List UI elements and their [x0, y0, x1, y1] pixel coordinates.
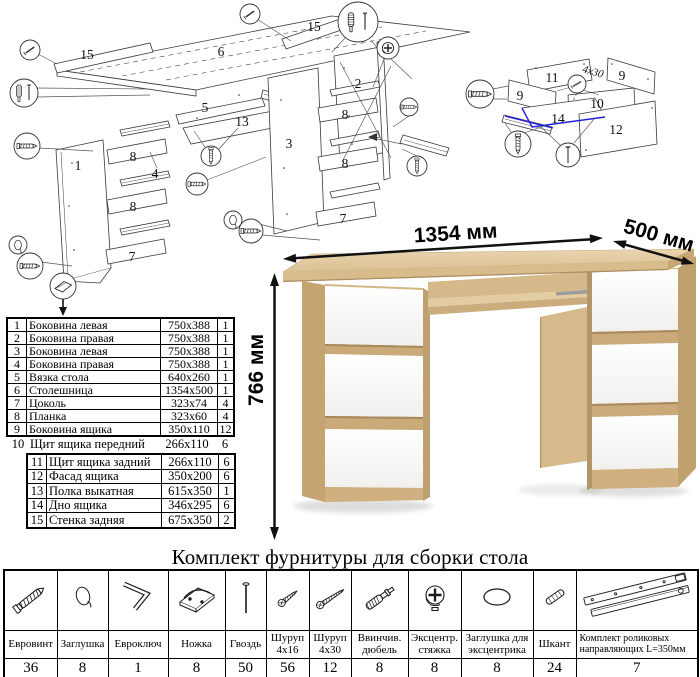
hardware-icon-cell: [309, 570, 351, 631]
hardware-icon-cell: [533, 570, 576, 631]
hardware-qty: 8: [461, 659, 533, 677]
part-name: Щит ящика передний: [30, 437, 162, 452]
part-label: 9: [517, 88, 524, 103]
part-label: 6: [218, 44, 225, 59]
hardware-name: Заглушка для эксцентрика: [461, 631, 533, 659]
part-label: 8: [342, 107, 349, 122]
hardware-kit-title: Комплект фурнитуры для сборки стола: [0, 545, 700, 570]
part-num: 8: [7, 410, 27, 423]
part-num: 10: [6, 437, 30, 452]
part-size: 350x110: [161, 423, 218, 437]
part-label: 8: [342, 156, 349, 171]
parts-row: 5Вязка стола640x2601: [7, 371, 234, 384]
part-num: 6: [7, 384, 27, 397]
part-num: 11: [27, 454, 47, 469]
nail-icon: [226, 571, 266, 625]
left-drawer-1: [325, 286, 423, 346]
confirmat-screw-icon: [7, 571, 55, 625]
part-qty: 1: [218, 345, 235, 358]
parts-list: 1Боковина левая750x3881 2Боковина правая…: [6, 317, 238, 529]
part-qty: 1: [218, 358, 235, 371]
part-qty: 4: [218, 397, 235, 410]
part-size: 640x260: [161, 371, 218, 384]
parts-row: 7Цоколь323x744: [7, 397, 234, 410]
right-drawer-1: [592, 269, 678, 332]
part-qty: 1: [218, 318, 235, 332]
middle-parts-drawing: [176, 68, 324, 234]
hardware-icon-cell: [461, 570, 533, 631]
part-num: 7: [7, 397, 27, 410]
part-num: 13: [27, 484, 47, 499]
tray-left-wall: [423, 288, 430, 501]
part-qty: 6: [219, 454, 236, 469]
hardware-icon-cell: [351, 570, 408, 631]
arrowhead: [283, 254, 296, 263]
hardware-icon-cell: [408, 570, 461, 631]
hardware-icon-cell: [108, 570, 168, 631]
hardware-icon-cell: [57, 570, 108, 631]
part-qty: 6: [219, 469, 236, 484]
hardware-qty: 12: [309, 659, 351, 677]
confirmat-icon: [469, 91, 492, 97]
part-size: 266x110: [162, 437, 212, 452]
hardware-name: Евровинт: [4, 631, 57, 659]
wood-dowel-icon: [534, 571, 576, 625]
right-drawer-2: [592, 343, 678, 404]
hardware-qty: 7: [576, 659, 698, 677]
part-label: 11: [546, 70, 559, 85]
confirmat-icon: [241, 228, 261, 233]
part-num: 3: [7, 345, 27, 358]
part-name: Планка: [27, 410, 161, 423]
part-name: Боковина ящика: [27, 423, 161, 437]
parts-row: 15Стенка задняя675x3502: [27, 513, 235, 528]
width-dimension-label: 1354 мм: [413, 219, 498, 247]
cam-cover-icon: [464, 571, 530, 625]
hardware-qty: 8: [57, 659, 108, 677]
arrowhead: [270, 273, 279, 286]
part-label: 8: [130, 149, 137, 164]
arrowhead: [613, 240, 627, 248]
part-label: 8: [130, 199, 137, 214]
parts-row: 11Щит ящика задний266x1106: [27, 454, 235, 469]
confirmat-icon: [515, 134, 520, 154]
part-num: 9: [7, 423, 27, 437]
right-plinth: [592, 468, 678, 489]
part-qty: 2: [219, 513, 236, 528]
hardware-icon-cell: [4, 570, 57, 631]
part-name: Вязка стола: [27, 371, 161, 384]
part-size: 323x60: [161, 410, 218, 423]
assembly-instruction-sheet: 15 6 15 1 8 4 8 7 5 13 3 2 8 8 7: [0, 0, 700, 677]
part-label: 13: [235, 114, 249, 129]
hardware-name: Шуруп 4x16: [266, 631, 309, 659]
part-qty: 6: [212, 437, 238, 452]
part-name: Боковина правая: [27, 332, 161, 345]
hardware-qty: 8: [351, 659, 408, 677]
part-size: 750x388: [161, 318, 218, 332]
part-label: 12: [609, 122, 623, 137]
part-size: 750x388: [161, 358, 218, 371]
confirmat-icon: [401, 105, 417, 109]
screw-in-dowel-icon: [354, 571, 406, 625]
part-qty: 1: [218, 384, 235, 397]
parts-row-10: 10 Щит ящика передний 266x110 6: [6, 437, 238, 452]
part-name: Дно ящика: [47, 498, 162, 513]
part-label: 9: [619, 68, 626, 83]
arrowhead: [590, 234, 603, 243]
part-num: 15: [27, 513, 47, 528]
part-qty: 1: [219, 484, 236, 499]
hardware-icon-cell: [168, 570, 225, 631]
hardware-qty: 24: [533, 659, 576, 677]
confirmat-icon: [17, 143, 37, 148]
screw-4x16-icon: [267, 571, 309, 625]
parts-row: 13Полка выкатная615x3501: [27, 484, 235, 499]
left-drawer-3: [325, 429, 423, 488]
hardware-qty: 1: [108, 659, 168, 677]
hardware-name: Евроключ: [108, 631, 168, 659]
right-pedestal-side: [678, 256, 696, 487]
part-label: 7: [340, 211, 347, 226]
part-label: 14: [551, 111, 565, 126]
part-num: 1: [7, 318, 27, 332]
part-num: 4: [7, 358, 27, 371]
hardware-name: Эксцентр. стяжка: [408, 631, 461, 659]
hardware-name-row: Евровинт Заглушка Евроключ Ножка Гвоздь …: [4, 631, 698, 659]
parts-row: 8Планка323x604: [7, 410, 234, 423]
left-pedestal-slats-drawing: [106, 121, 170, 264]
part-size: 750x388: [161, 345, 218, 358]
hardware-name: Ввинчив. дюбель: [351, 631, 408, 659]
hardware-icon-cell: [576, 570, 698, 631]
part-label: 1: [75, 158, 82, 173]
parts-table-upper: 1Боковина левая750x3881 2Боковина правая…: [6, 317, 235, 437]
part-label: 15: [307, 19, 321, 34]
part-size: 350x200: [162, 469, 219, 484]
part-num: 14: [27, 498, 47, 513]
right-drawer-3: [592, 415, 678, 470]
foot-icon: [171, 571, 223, 625]
part-name: Стенка задняя: [47, 513, 162, 528]
parts-row: 4Боковина правая750x3881: [7, 358, 234, 371]
part-qty: 4: [218, 410, 235, 423]
parts-row: 1Боковина левая750x3881: [7, 318, 234, 332]
left-pedestal-side: [302, 281, 325, 502]
part-name: Боковина правая: [27, 358, 161, 371]
hardware-name: Шкант: [533, 631, 576, 659]
confirmat-icon: [415, 158, 419, 174]
hardware-qty: 8: [408, 659, 461, 677]
hardware-name: Ножка: [168, 631, 225, 659]
part-size: 346x295: [162, 498, 219, 513]
cam-lock-icon: [382, 42, 393, 53]
hardware-icon-cell: [266, 570, 309, 631]
part-size: 323x74: [161, 397, 218, 410]
parts-row: 9Боковина ящика350x11012: [7, 423, 234, 437]
right-pedestal-drawing: [316, 41, 449, 226]
middle-panel-edge: [540, 317, 541, 468]
part-label: 2: [355, 76, 362, 91]
cam-lock-icon: [411, 571, 459, 625]
confirmat-icon: [188, 182, 206, 187]
parts-row: 6Столешница1354x5001: [7, 384, 234, 397]
hardware-qty-row: 36 8 1 8 50 56 12 8 8 8 24 7: [4, 659, 698, 677]
arrowhead: [270, 527, 279, 540]
part-size: 1354x500: [161, 384, 218, 397]
part-size: 675x350: [162, 513, 219, 528]
left-drawer-2: [325, 354, 423, 417]
part-label: 5: [202, 100, 209, 115]
part-name: Цоколь: [27, 397, 161, 410]
part-name: Боковина левая: [27, 318, 161, 332]
part-label: 7: [129, 249, 136, 264]
parts-row: 3Боковина левая750x3881: [7, 345, 234, 358]
left-plinth: [325, 487, 423, 502]
foot-arrowhead: [59, 307, 67, 316]
hardware-kit-table: Евровинт Заглушка Евроключ Ножка Гвоздь …: [3, 569, 699, 677]
left-side-panel-drawing: [56, 140, 111, 283]
part-size: 750x388: [161, 332, 218, 345]
roller-slides-icon: [578, 571, 696, 625]
right-pedestal-inner-side: [587, 271, 592, 490]
part-num: 2: [7, 332, 27, 345]
part-qty: 6: [219, 498, 236, 513]
part-label: 10: [590, 96, 604, 111]
hardware-qty: 50: [225, 659, 266, 677]
hardware-name: Комплект роликовых направляющих L=350мм: [576, 631, 698, 659]
height-dimension-label: 766 мм: [245, 334, 268, 406]
cover-cap-icon: [59, 571, 107, 625]
desk-render: [283, 249, 696, 513]
hex-key-icon: [110, 571, 166, 625]
part-num: 12: [27, 469, 47, 484]
hardware-qty: 56: [266, 659, 309, 677]
part-size: 266x110: [162, 454, 219, 469]
hardware-qty: 36: [4, 659, 57, 677]
part-name: Столешница: [27, 384, 161, 397]
part-size: 615x350: [162, 484, 219, 499]
drawer-assembly-diagram: 11 9 9 10 14 12 4x30: [466, 58, 657, 167]
parts-table-lower: 11Щит ящика задний266x1106 12Фасад ящика…: [26, 453, 236, 529]
hardware-name: Шуруп 4x30: [309, 631, 351, 659]
part-qty: 1: [218, 371, 235, 384]
hardware-name: Гвоздь: [225, 631, 266, 659]
parts-row: 2Боковина правая750x3881: [7, 332, 234, 345]
parts-row: 12Фасад ящика350x2006: [27, 469, 235, 484]
hardware-name: Заглушка: [57, 631, 108, 659]
confirmat-icon: [209, 148, 213, 165]
confirmat-icon: [20, 263, 40, 268]
part-num: 5: [7, 371, 27, 384]
part-name: Боковина левая: [27, 345, 161, 358]
part-label: 15: [80, 47, 94, 62]
hardware-icon-cell: [225, 570, 266, 631]
hardware-icon-row: [4, 570, 698, 631]
part-label: 3: [286, 136, 293, 151]
part-qty: 1: [218, 332, 235, 345]
part-name: Щит ящика задний: [47, 454, 162, 469]
part-name: Фасад ящика: [47, 469, 162, 484]
screw-4x30-icon: [310, 571, 352, 625]
middle-support-panel: [540, 307, 587, 468]
hardware-qty: 8: [168, 659, 225, 677]
part-name: Полка выкатная: [47, 484, 162, 499]
parts-row: 14Дно ящика346x2956: [27, 498, 235, 513]
part-label: 4: [152, 166, 159, 181]
part-qty: 12: [218, 423, 235, 437]
